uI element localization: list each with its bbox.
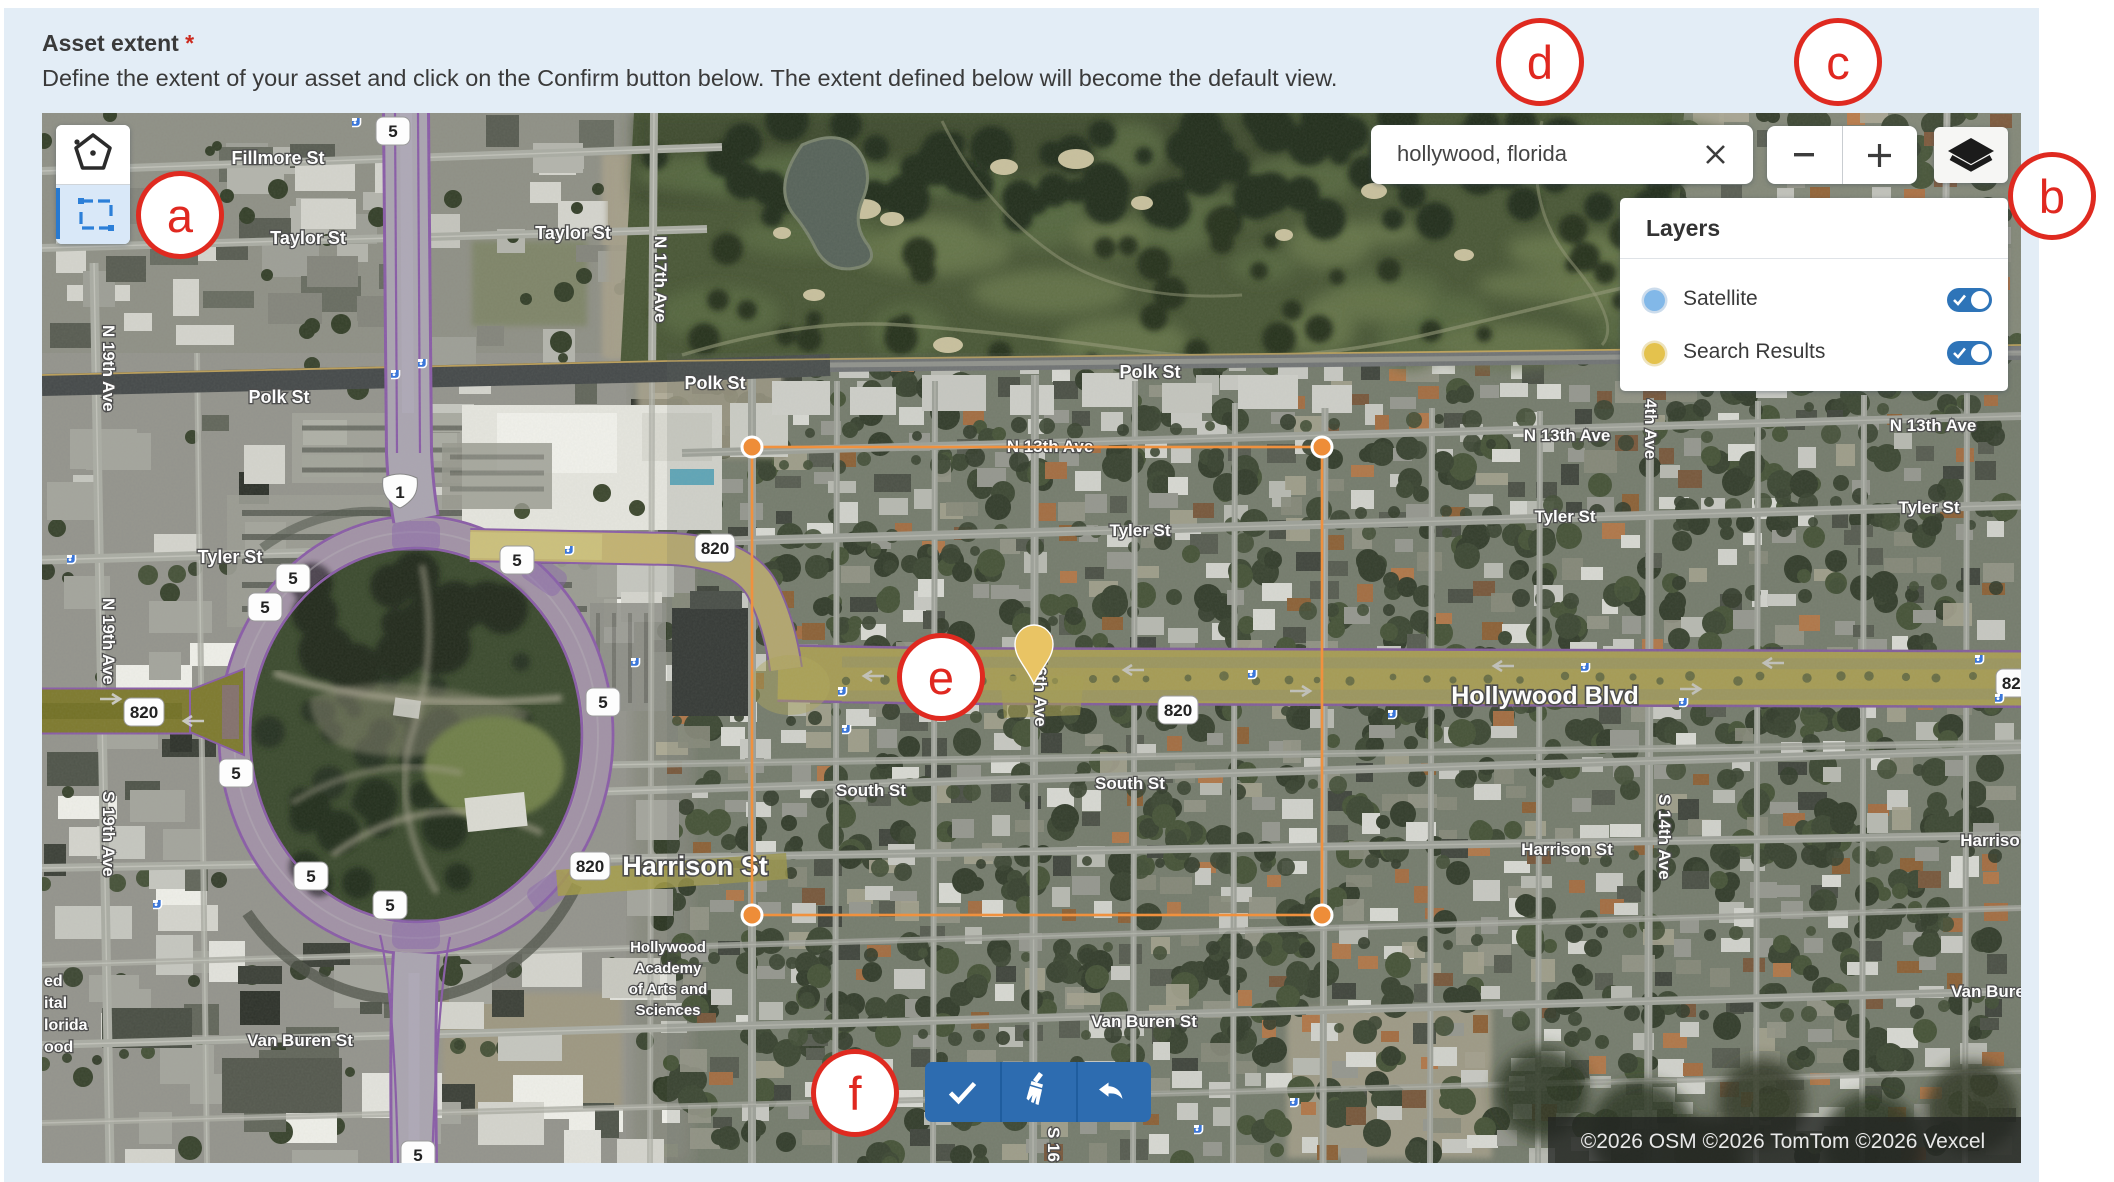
svg-text:Harrison St: Harrison St [1521, 840, 1613, 859]
svg-text:ital: ital [44, 995, 67, 1012]
svg-text:Van Buren St: Van Buren St [247, 1031, 353, 1050]
svg-text:Tyler St: Tyler St [198, 547, 263, 567]
svg-text:Polk St: Polk St [684, 373, 745, 393]
svg-text:©2026 OSM ©2026 TomTom ©2026 V: ©2026 OSM ©2026 TomTom ©2026 Vexcel [1581, 1130, 1985, 1153]
svg-text:Fillmore St: Fillmore St [231, 148, 324, 168]
svg-text:820: 820 [701, 539, 729, 558]
svg-text:820: 820 [576, 857, 604, 876]
svg-text:4th Ave: 4th Ave [1641, 399, 1660, 459]
svg-text:Harriso: Harriso [1960, 831, 2020, 850]
svg-text:N 13th Ave: N 13th Ave [1890, 416, 1977, 435]
svg-text:Hollywood Blvd: Hollywood Blvd [1451, 682, 1639, 710]
svg-text:5: 5 [288, 569, 297, 588]
svg-text:Van Buren St: Van Buren St [1091, 1012, 1197, 1031]
svg-text:N 13th Ave: N 13th Ave [1524, 426, 1611, 445]
svg-text:5: 5 [385, 896, 394, 915]
svg-text:S 14th Ave: S 14th Ave [1655, 794, 1674, 880]
svg-text:ed: ed [44, 973, 63, 990]
svg-text:Harrison St: Harrison St [622, 851, 768, 881]
svg-text:lorida: lorida [44, 1017, 88, 1034]
svg-text:Tyler St: Tyler St [1534, 507, 1595, 526]
svg-text:of Arts and: of Arts and [629, 981, 708, 998]
svg-text:5: 5 [413, 1146, 422, 1163]
svg-text:5: 5 [306, 867, 315, 886]
svg-text:Hollywood: Hollywood [630, 939, 706, 956]
svg-text:1: 1 [395, 483, 404, 502]
svg-text:820: 820 [130, 703, 158, 722]
svg-text:Van Bure: Van Bure [1951, 982, 2021, 1001]
svg-text:S 19th Ave: S 19th Ave [99, 791, 118, 877]
svg-text:5: 5 [598, 693, 607, 712]
svg-text:820: 820 [2002, 674, 2021, 693]
svg-text:South St: South St [1095, 774, 1165, 793]
svg-text:820: 820 [1164, 701, 1192, 720]
svg-text:Taylor St: Taylor St [270, 228, 346, 248]
svg-text:Tyler St: Tyler St [1898, 498, 1959, 517]
svg-text:5: 5 [231, 764, 240, 783]
svg-text:5: 5 [260, 598, 269, 617]
svg-text:S 16: S 16 [1044, 1127, 1063, 1162]
svg-text:Tyler St: Tyler St [1109, 521, 1170, 540]
svg-text:Polk St: Polk St [1119, 362, 1180, 382]
svg-text:ood: ood [44, 1039, 73, 1056]
svg-text:N 19th Ave: N 19th Ave [99, 598, 118, 685]
svg-text:5: 5 [512, 551, 521, 570]
svg-text:N 17th Ave: N 17th Ave [651, 236, 670, 323]
svg-text:N 19th Ave: N 19th Ave [99, 325, 118, 412]
svg-text:Sciences: Sciences [635, 1002, 700, 1019]
svg-text:Academy: Academy [635, 960, 702, 977]
svg-text:5: 5 [388, 122, 397, 141]
svg-text:Taylor St: Taylor St [535, 223, 611, 243]
svg-text:South St: South St [836, 781, 906, 800]
svg-text:Polk St: Polk St [248, 387, 309, 407]
